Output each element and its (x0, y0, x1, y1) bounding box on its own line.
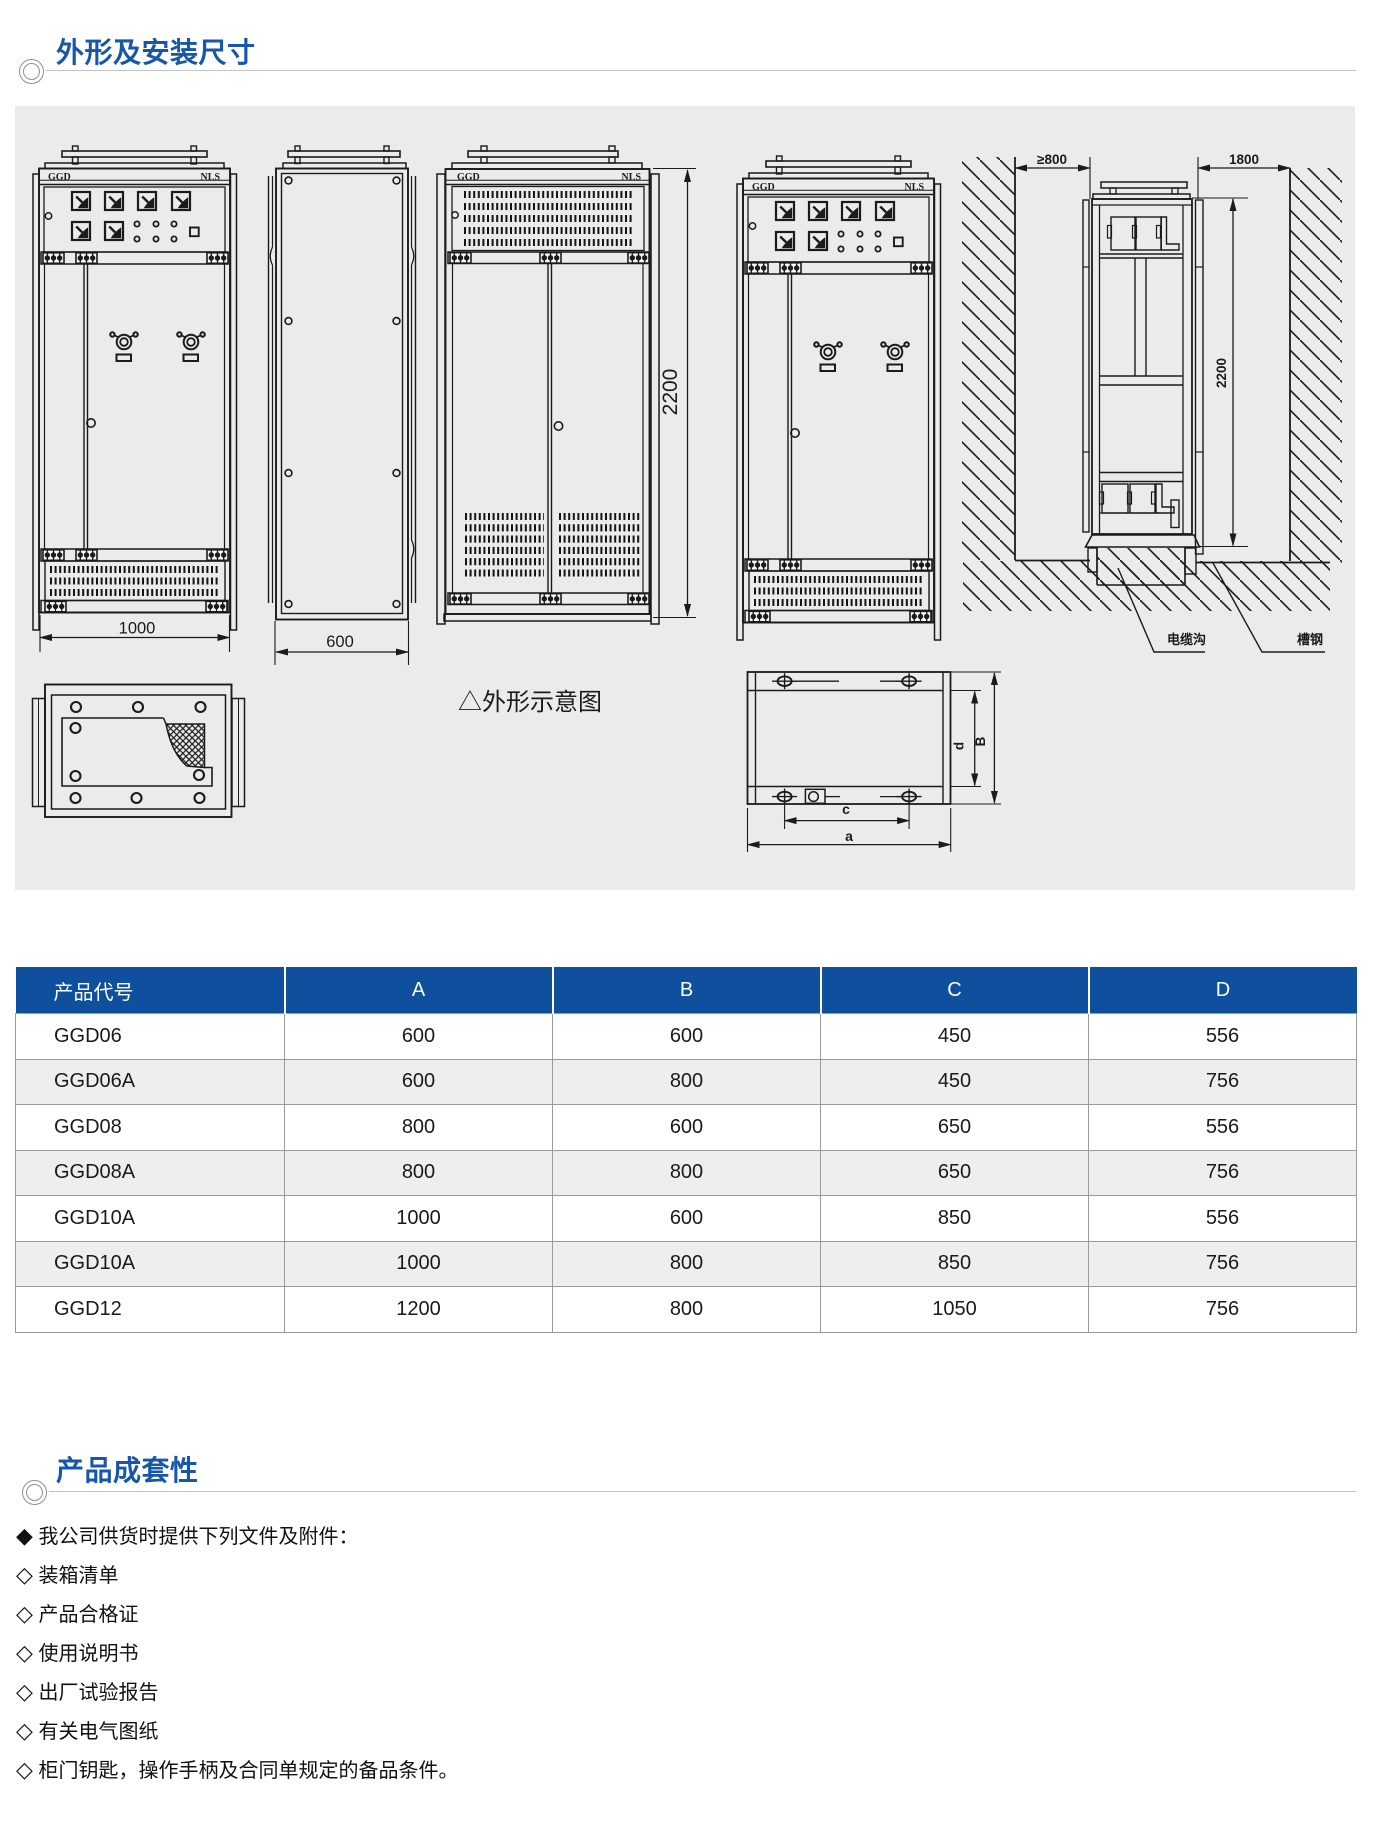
svg-text:电缆沟: 电缆沟 (1167, 632, 1206, 647)
svg-text:槽钢: 槽钢 (1297, 632, 1323, 647)
svg-text:a: a (845, 828, 853, 844)
svg-text:1800: 1800 (1229, 152, 1259, 167)
svg-text:600: 600 (326, 633, 354, 651)
svg-text:GGD: GGD (457, 172, 480, 183)
svg-text:2200: 2200 (1214, 358, 1229, 388)
svg-text:△外形示意图: △外形示意图 (458, 689, 602, 716)
svg-text:d: d (952, 742, 967, 750)
svg-text:B: B (973, 736, 988, 746)
svg-text:c: c (842, 801, 850, 817)
svg-text:NLS: NLS (201, 172, 221, 183)
svg-text:2200: 2200 (659, 369, 682, 416)
svg-text:NLS: NLS (622, 172, 642, 183)
svg-text:1000: 1000 (119, 620, 156, 638)
svg-text:GGD: GGD (48, 172, 71, 183)
svg-text:≥800: ≥800 (1037, 152, 1067, 167)
